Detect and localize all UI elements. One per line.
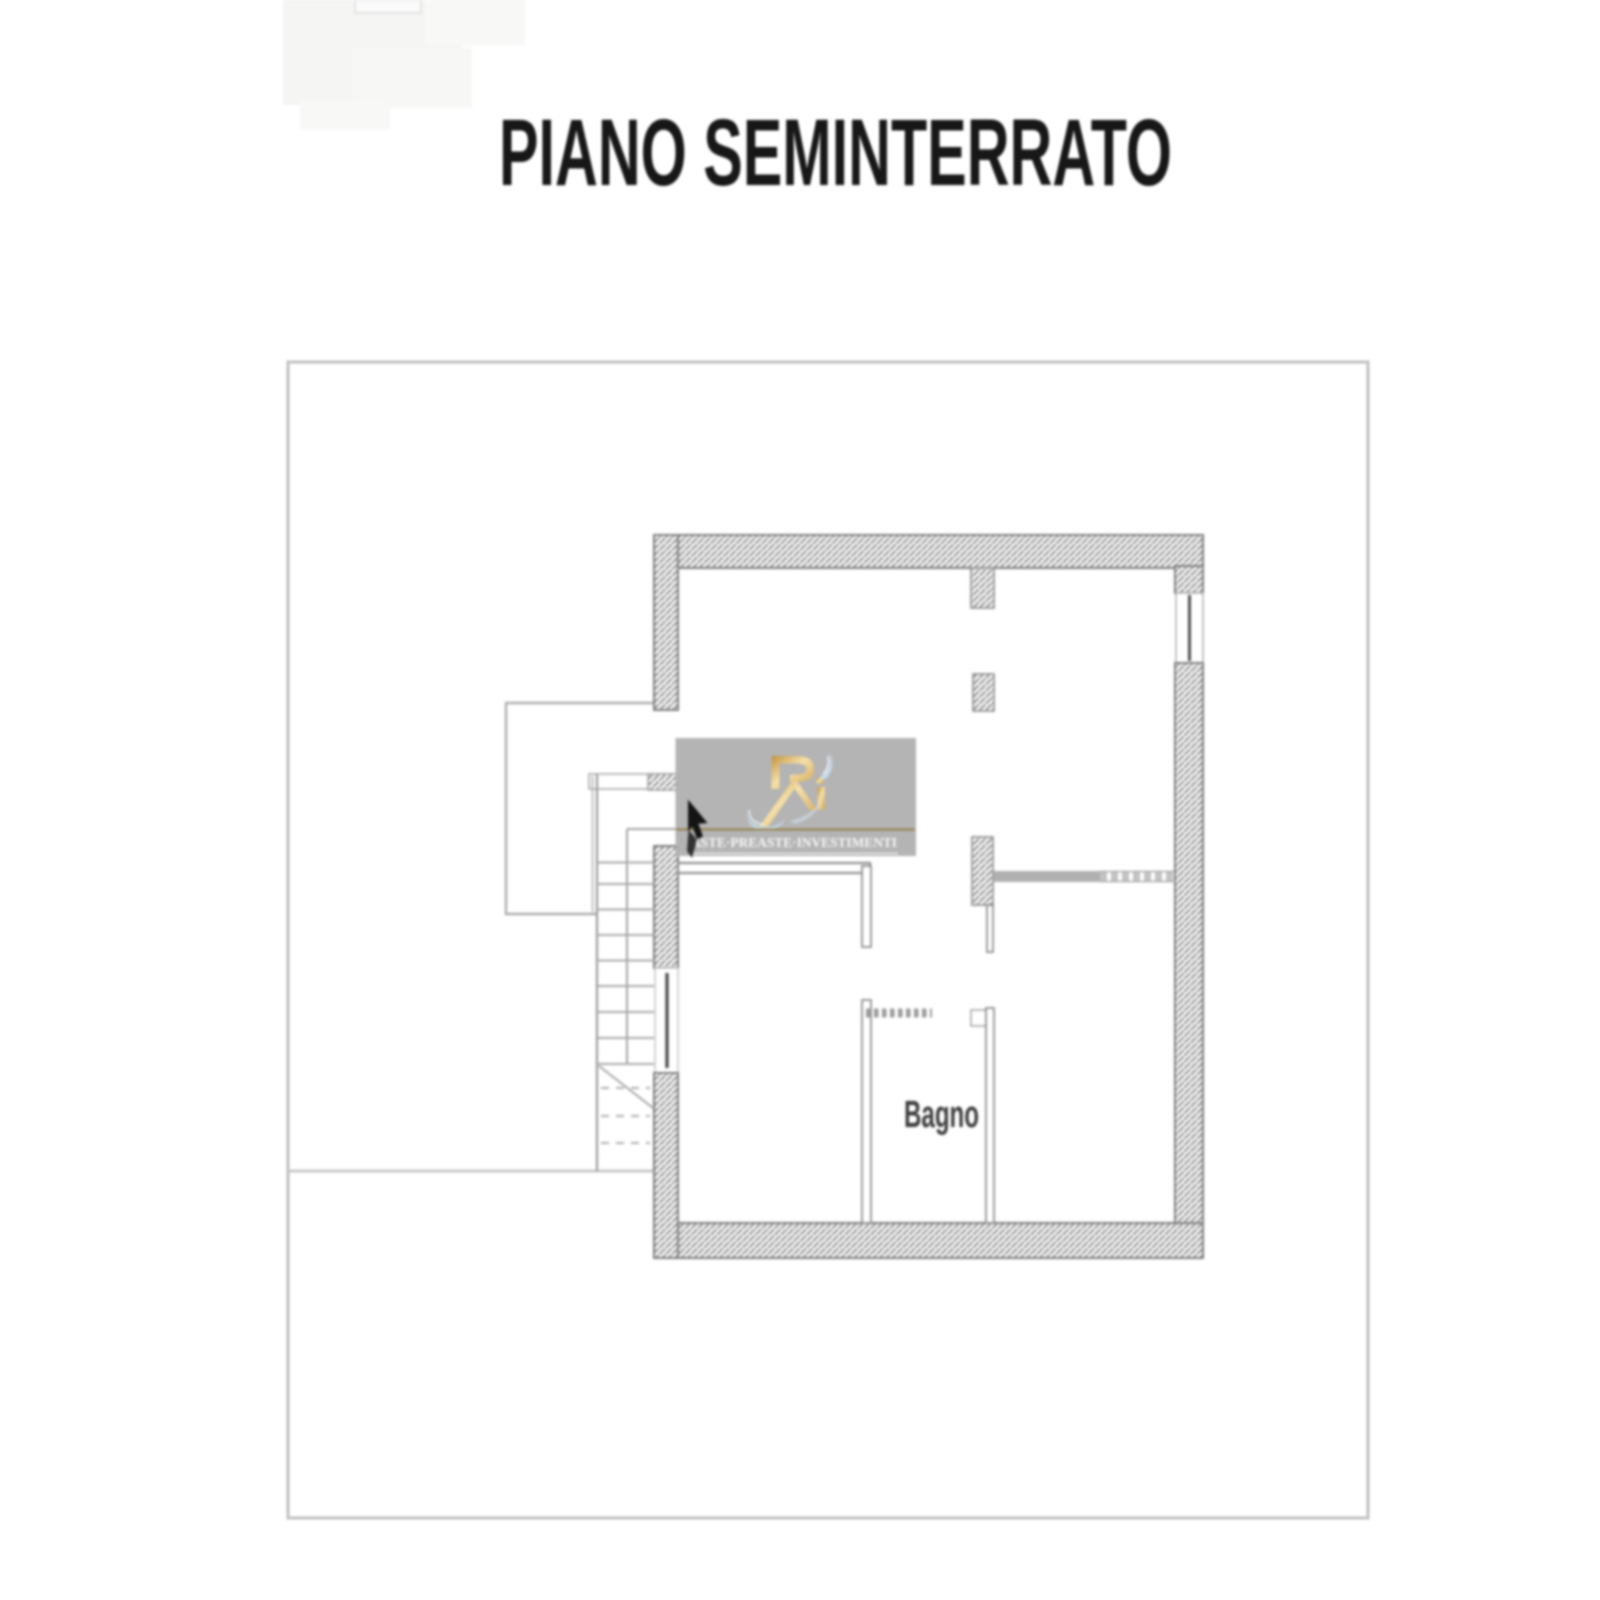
- svg-text:Bagno: Bagno: [904, 1094, 979, 1136]
- svg-text:PIANO SEMINTERRATO: PIANO SEMINTERRATO: [499, 100, 1172, 206]
- svg-text:ASTE·PREASTE·INVESTIMENTI: ASTE·PREASTE·INVESTIMENTI: [691, 836, 897, 851]
